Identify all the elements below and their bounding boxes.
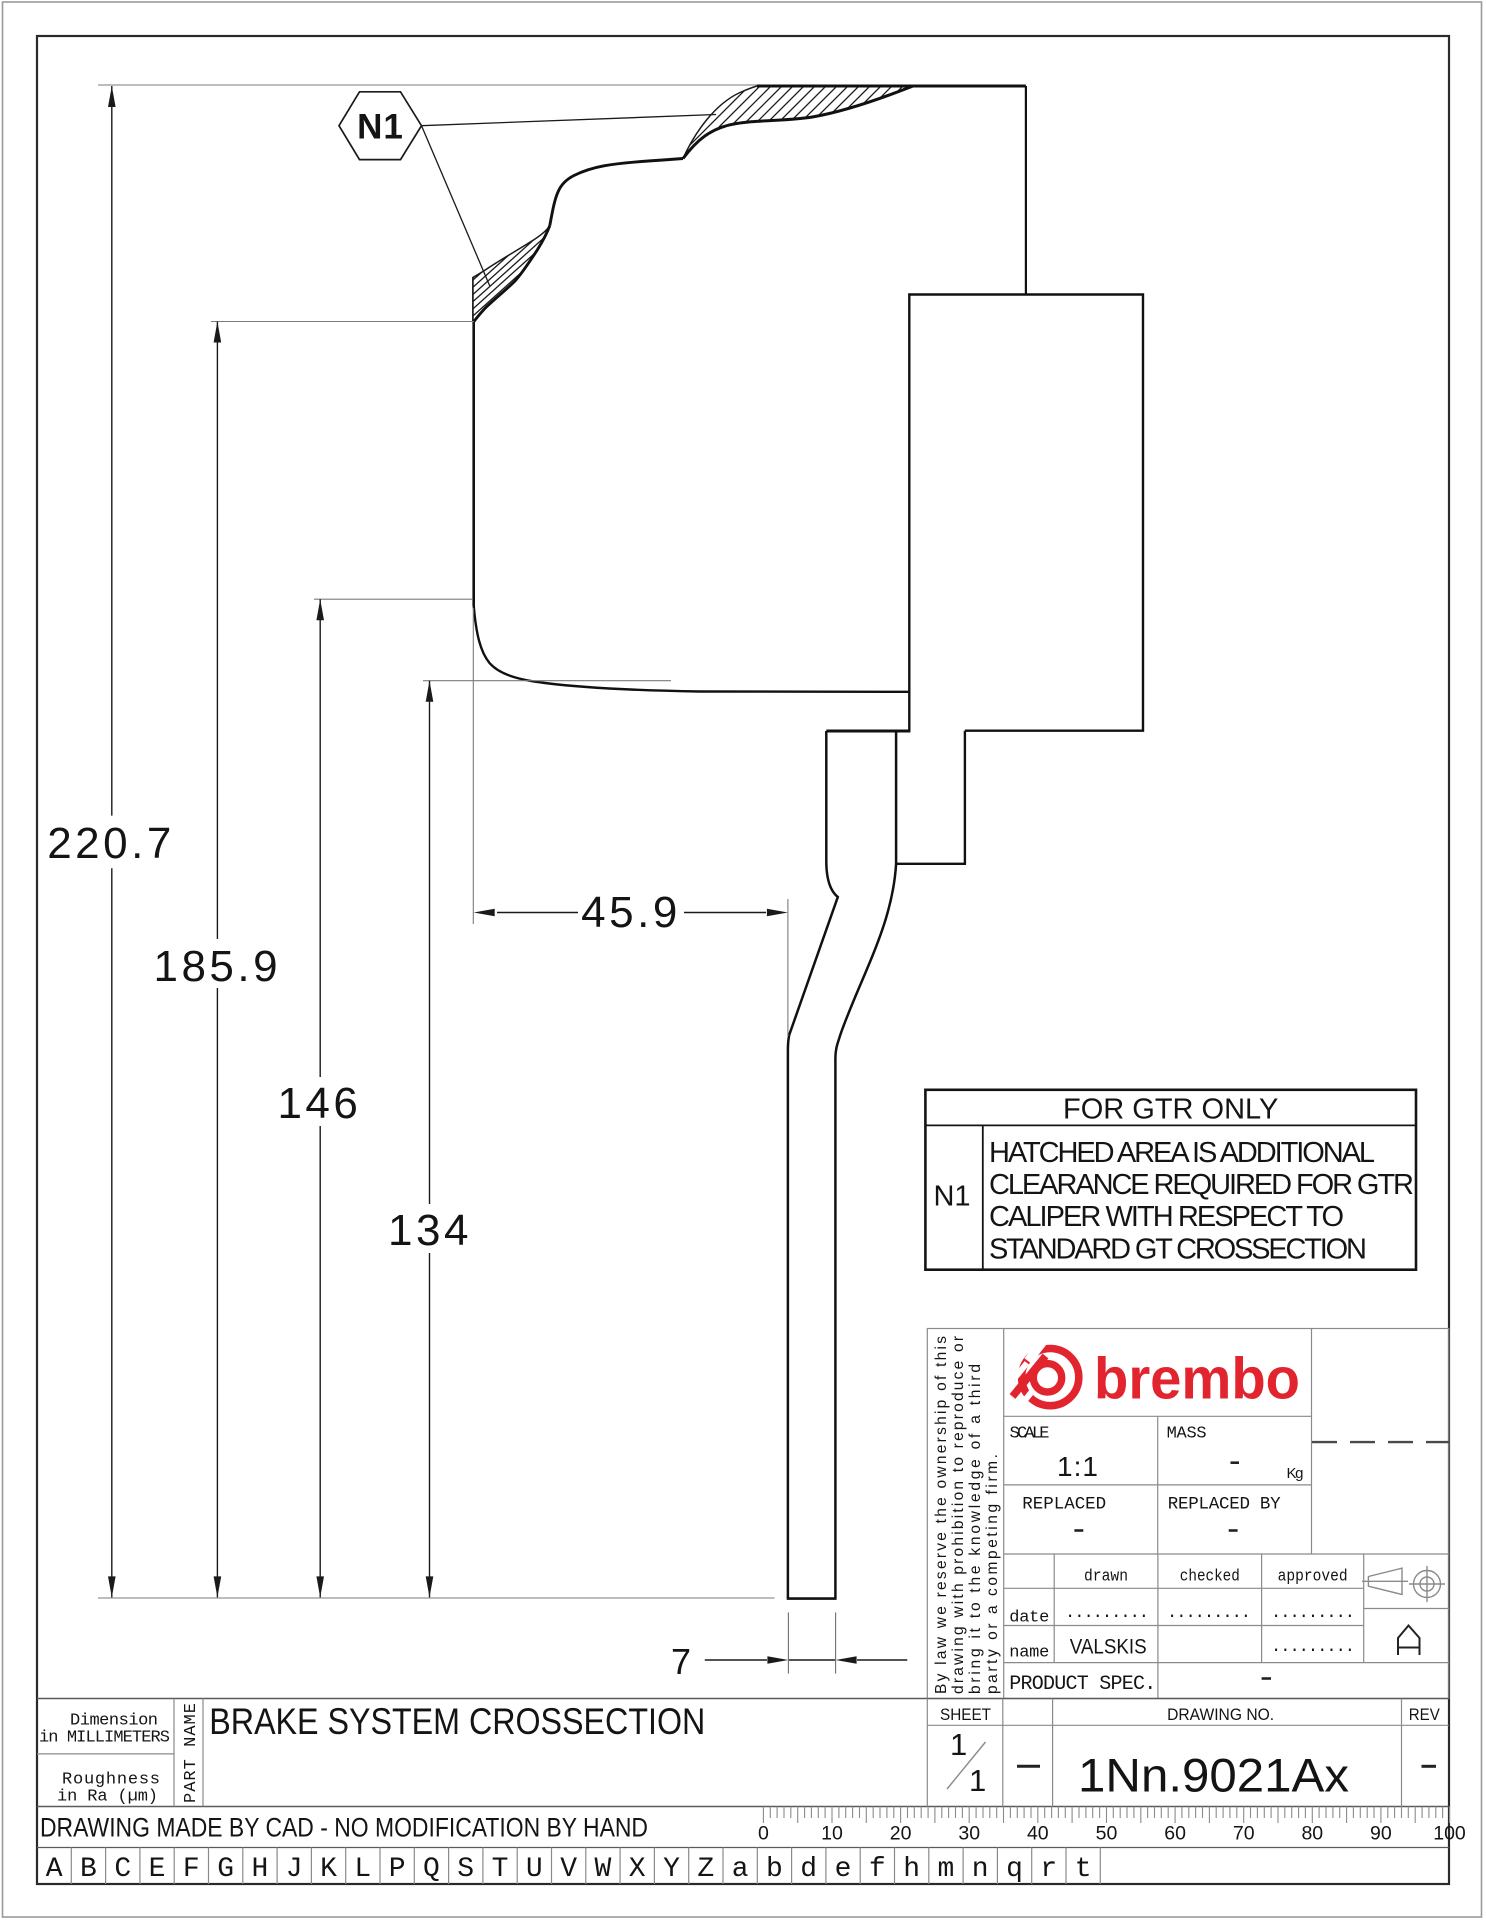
svg-text:X: X [629, 1854, 646, 1885]
svg-text:1: 1 [969, 1763, 986, 1798]
svg-text:90: 90 [1370, 1823, 1392, 1845]
svg-text:U: U [526, 1854, 543, 1885]
svg-text:HATCHED AREA IS ADDITIONAL: HATCHED AREA IS ADDITIONAL [989, 1137, 1375, 1169]
svg-text:70: 70 [1233, 1823, 1255, 1845]
svg-text:134: 134 [388, 1206, 472, 1255]
svg-text:.........: ......... [1271, 1604, 1355, 1623]
svg-text:P: P [389, 1854, 406, 1885]
svg-text:name: name [1009, 1644, 1049, 1663]
svg-text:1:1: 1:1 [1057, 1451, 1099, 1482]
svg-text:F: F [183, 1854, 200, 1885]
svg-text:e: e [835, 1854, 852, 1885]
svg-text:100: 100 [1433, 1823, 1466, 1845]
svg-text:PRODUCT SPEC.: PRODUCT SPEC. [1009, 1673, 1156, 1696]
svg-text:FOR GTR ONLY: FOR GTR ONLY [1063, 1093, 1278, 1125]
svg-text:Dimension: Dimension [70, 1711, 158, 1730]
svg-text:20: 20 [890, 1823, 912, 1845]
svg-text:VALSKIS: VALSKIS [1070, 1635, 1147, 1658]
svg-text:REPLACED: REPLACED [1022, 1494, 1106, 1514]
svg-text:REV: REV [1409, 1705, 1441, 1724]
svg-text:E: E [149, 1854, 166, 1885]
svg-text:0: 0 [758, 1823, 769, 1845]
svg-text:brembo: brembo [1094, 1347, 1300, 1412]
svg-text:in Ra (µm): in Ra (µm) [57, 1788, 158, 1807]
svg-text:J: J [286, 1854, 303, 1885]
svg-text:60: 60 [1164, 1823, 1186, 1845]
svg-text:A: A [46, 1854, 63, 1885]
svg-text:220.7: 220.7 [47, 819, 175, 868]
svg-text:.........: ......... [1271, 1638, 1355, 1657]
svg-text:r: r [1040, 1854, 1057, 1885]
svg-text:G: G [217, 1854, 234, 1885]
svg-text:V: V [560, 1854, 577, 1885]
svg-text:DRAWING MADE BY CAD - NO MODIF: DRAWING MADE BY CAD - NO MODIFICATION BY… [40, 1813, 648, 1843]
svg-text:STANDARD GT CROSSECTION: STANDARD GT CROSSECTION [989, 1233, 1367, 1265]
svg-text:SCALE: SCALE [1010, 1425, 1050, 1444]
svg-text:80: 80 [1301, 1823, 1323, 1845]
svg-text:h: h [903, 1854, 920, 1885]
svg-text:B: B [80, 1854, 97, 1885]
svg-text:N1: N1 [357, 108, 404, 147]
svg-text:T: T [492, 1854, 509, 1885]
svg-text:CLEARANCE REQUIRED FOR GTR: CLEARANCE REQUIRED FOR GTR [989, 1169, 1414, 1201]
svg-text:checked: checked [1180, 1568, 1240, 1587]
svg-text:approved: approved [1278, 1568, 1348, 1587]
svg-text:30: 30 [958, 1823, 980, 1845]
svg-text:in MILLIMETERS: in MILLIMETERS [39, 1729, 170, 1748]
svg-text:n: n [972, 1854, 989, 1885]
svg-text:N1: N1 [933, 1180, 970, 1212]
svg-text:Y: Y [663, 1854, 680, 1885]
svg-text:1: 1 [950, 1727, 967, 1762]
svg-text:MASS: MASS [1167, 1425, 1207, 1444]
svg-text:m: m [937, 1854, 954, 1885]
svg-text:t: t [1075, 1854, 1092, 1885]
svg-text:K: K [320, 1854, 337, 1885]
svg-text:REPLACED BY: REPLACED BY [1168, 1494, 1281, 1514]
svg-text:146: 146 [277, 1079, 361, 1128]
svg-text:H: H [251, 1854, 268, 1885]
svg-text:Roughness: Roughness [62, 1770, 160, 1789]
svg-text:185.9: 185.9 [153, 942, 281, 991]
svg-text:Z: Z [697, 1854, 714, 1885]
svg-text:By law we reserve the ownershi: By law we reserve the ownership of this [933, 1336, 950, 1694]
svg-text:DRAWING NO.: DRAWING NO. [1167, 1705, 1274, 1724]
svg-text:7: 7 [671, 1641, 691, 1682]
svg-text:CALIPER WITH RESPECT TO: CALIPER WITH RESPECT TO [989, 1201, 1344, 1233]
svg-text:BRAKE SYSTEM CROSSECTION: BRAKE SYSTEM CROSSECTION [209, 1701, 705, 1742]
svg-text:date: date [1009, 1609, 1049, 1628]
svg-text:SHEET: SHEET [940, 1705, 991, 1724]
svg-text:q: q [1006, 1854, 1023, 1885]
svg-text:45.9: 45.9 [581, 888, 681, 937]
svg-text:10: 10 [821, 1823, 843, 1845]
svg-text:Kg: Kg [1287, 1465, 1304, 1482]
svg-text:S: S [457, 1854, 474, 1885]
svg-text:a: a [732, 1854, 749, 1885]
svg-text:1Nn.9021Ax: 1Nn.9021Ax [1078, 1750, 1349, 1803]
svg-text:b: b [766, 1854, 783, 1885]
svg-text:Q: Q [423, 1854, 440, 1885]
svg-text:.........: ......... [1065, 1604, 1149, 1623]
svg-text:f: f [869, 1854, 886, 1885]
svg-text:L: L [354, 1854, 371, 1885]
svg-text:drawn: drawn [1084, 1568, 1128, 1587]
svg-text:.........: ......... [1167, 1604, 1251, 1623]
svg-text:40: 40 [1027, 1823, 1049, 1845]
svg-text:W: W [594, 1854, 611, 1885]
svg-text:C: C [114, 1854, 131, 1885]
svg-text:50: 50 [1096, 1823, 1118, 1845]
svg-text:drawing with prohibition to re: drawing with prohibition to reproduce or [950, 1336, 967, 1694]
svg-text:PART NAME: PART NAME [182, 1703, 201, 1803]
svg-text:d: d [800, 1854, 817, 1885]
